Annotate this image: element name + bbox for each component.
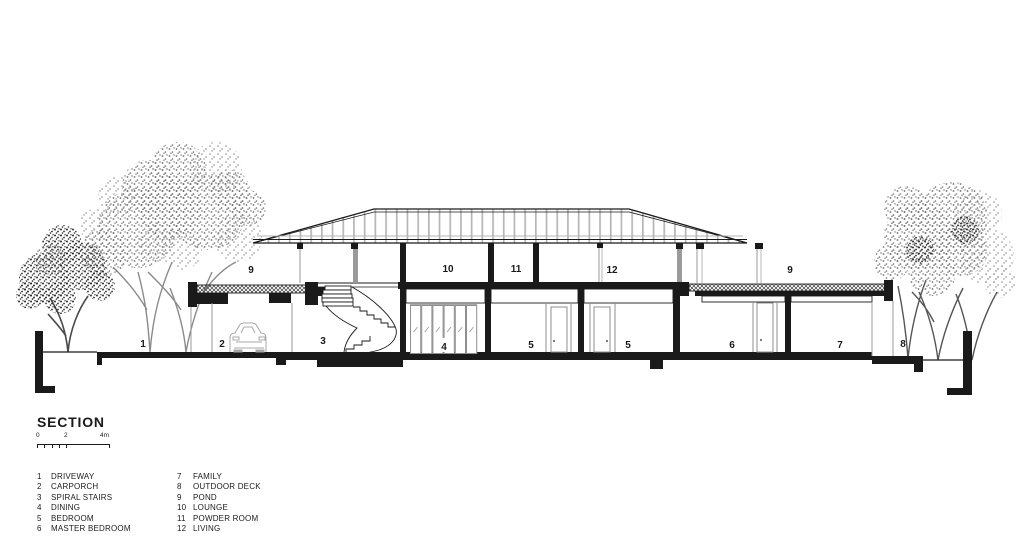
legend-num: 6 (37, 524, 51, 534)
room-label-driveway: 1 (140, 339, 146, 350)
tree-trunks-left (114, 262, 236, 352)
scale-bar-tick (52, 444, 53, 448)
section-drawing: 1 2 3 4 5 5 6 7 8 9 9 10 11 12 (0, 0, 1024, 555)
trees-right (874, 182, 1016, 360)
room-label-bedroom-2: 5 (625, 340, 631, 351)
legend-column-2: 7FAMILY 8OUTDOOR DECK 9POND 10LOUNGE 11P… (177, 472, 261, 534)
legend-item: 12LIVING (177, 524, 261, 534)
room-label-spiral-stairs: 3 (320, 336, 326, 347)
legend-num: 12 (177, 524, 193, 534)
legend-num: 9 (177, 493, 193, 503)
trees-left (16, 142, 266, 352)
legend-num: 10 (177, 503, 193, 513)
legend-label: MASTER BEDROOM (51, 524, 131, 533)
left-retaining-wall (35, 331, 55, 393)
scale-tick-label-0: 0 (36, 432, 40, 439)
legend-label: POND (193, 493, 217, 502)
room-label-family: 7 (837, 340, 843, 351)
scale-bar-tick (59, 444, 60, 448)
legend-num: 1 (37, 472, 51, 482)
scale-bar-tick (37, 444, 38, 448)
roof (253, 209, 747, 243)
legend-num: 2 (37, 482, 51, 492)
scale-bar-line (37, 444, 110, 445)
columns (297, 243, 763, 284)
legend-num: 7 (177, 472, 193, 482)
room-label-living: 12 (606, 265, 618, 276)
legend-label: FAMILY (193, 472, 222, 481)
legend-label: BEDROOM (51, 514, 94, 523)
room-label-lounge: 10 (442, 264, 454, 275)
car (230, 323, 266, 352)
scale-bar-tick (109, 444, 110, 448)
legend-label: CARPORCH (51, 482, 98, 491)
drawing-title: SECTION (37, 414, 105, 430)
room-label-master-bedroom: 6 (729, 340, 735, 351)
legend-label: DRIVEWAY (51, 472, 94, 481)
legend-label: SPIRAL STAIRS (51, 493, 112, 502)
deck-glazing-posts (872, 301, 893, 356)
room-label-carporch: 2 (219, 339, 225, 350)
legend-column-1: 1DRIVEWAY 2CARPORCH 3SPIRAL STAIRS 4DINI… (37, 472, 131, 534)
room-label-bedroom-1: 5 (528, 340, 534, 351)
legend-item: 3SPIRAL STAIRS (37, 493, 131, 503)
legend-num: 8 (177, 482, 193, 492)
room-label-outdoor-deck: 8 (900, 339, 906, 350)
legend-item: 10LOUNGE (177, 503, 261, 513)
scale-bar-tick (44, 444, 45, 448)
legend-item: 4DINING (37, 503, 131, 513)
room-number-labels: 1 2 3 4 5 5 6 7 8 9 9 10 11 12 (140, 264, 906, 353)
legend-num: 11 (177, 514, 193, 524)
legend-item: 1DRIVEWAY (37, 472, 131, 482)
legend-item: 9POND (177, 493, 261, 503)
legend-label: OUTDOOR DECK (193, 482, 261, 491)
scale-tick-label-4m: 4m (100, 432, 109, 439)
legend-label: DINING (51, 503, 80, 512)
scale-tick-label-2: 2 (64, 432, 68, 439)
legend-item: 6MASTER BEDROOM (37, 524, 131, 534)
tree-foliage-right (874, 182, 1016, 298)
legend-item: 5BEDROOM (37, 514, 131, 524)
legend-label: LIVING (193, 524, 220, 533)
legend-num: 3 (37, 493, 51, 503)
ground-slabs (43, 352, 963, 372)
scale-bar: 0 2 4m (37, 432, 117, 448)
legend-label: LOUNGE (193, 503, 228, 512)
room-label-dining: 4 (441, 342, 447, 353)
upper-floor-walls (400, 243, 539, 282)
legend-item: 7FAMILY (177, 472, 261, 482)
room-label-pond-right: 9 (787, 265, 793, 276)
room-label-powder-room: 11 (511, 264, 522, 275)
legend-item: 2CARPORCH (37, 482, 131, 492)
legend-label: POWDER ROOM (193, 514, 258, 523)
architectural-section-sheet: 1 2 3 4 5 5 6 7 8 9 9 10 11 12 SECTION 0… (0, 0, 1024, 555)
legend-num: 5 (37, 514, 51, 524)
right-retaining-wall (947, 331, 972, 395)
scale-bar-tick (66, 444, 67, 448)
tree-small-dark (16, 225, 115, 352)
legend-item: 11POWDER ROOM (177, 514, 261, 524)
room-label-pond-left: 9 (248, 265, 254, 276)
spiral-stairs (322, 286, 396, 353)
legend-num: 4 (37, 503, 51, 513)
legend-item: 8OUTDOOR DECK (177, 482, 261, 492)
tree-trunks-right (898, 280, 997, 360)
